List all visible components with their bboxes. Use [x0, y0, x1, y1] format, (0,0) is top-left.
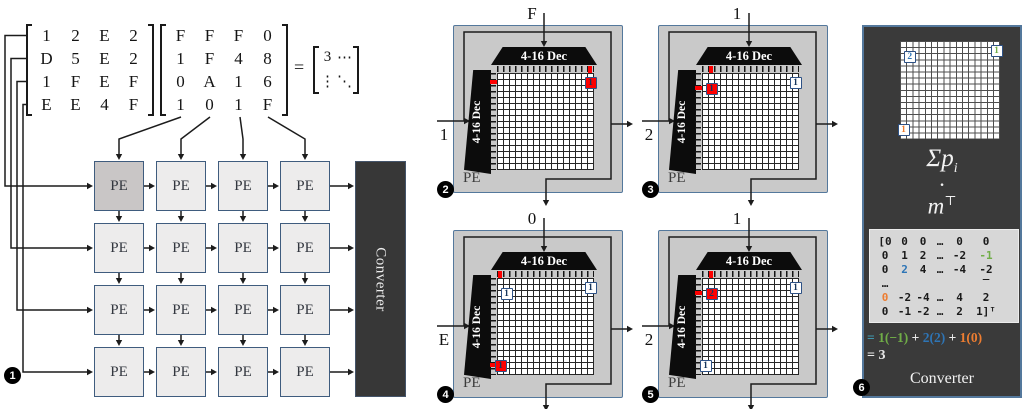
matrix-value: 8	[253, 47, 282, 70]
matrix-value: 2	[119, 24, 148, 47]
weight-matrix-value: -4	[947, 263, 972, 276]
pe-box-r3c3: PE	[280, 347, 330, 397]
result-matrix: 3⋯⋮⋱	[313, 46, 359, 94]
decoder-ticks-top	[497, 66, 594, 72]
step-badge-3: 3	[642, 181, 659, 198]
weight-matrix-value: 2	[913, 249, 933, 262]
row-decoder-label: 4-16 Dec	[472, 101, 484, 143]
figure-root: 12E2D5E21FEFEE4F FFF01F480A16101F = 3⋯⋮⋱…	[0, 0, 1029, 409]
converter-block: Converter	[355, 161, 406, 397]
matrix-value: 4	[90, 93, 119, 116]
systolic-array-overview: 12E2D5E21FEFEE4F FFF01F480A16101F = 3⋯⋮⋱…	[0, 0, 430, 409]
converter-detail-panel: 211 Σpi · m⊤ [000…00012…-2-1024…-4-2…‾0-…	[862, 25, 1022, 398]
weight-matrix-value: …	[933, 291, 947, 304]
pe-label: PE	[463, 375, 481, 392]
matrix-value: 6	[253, 70, 282, 93]
row-decoder-banner: 4-16 Dec	[669, 70, 696, 174]
equation-term: =	[867, 330, 878, 345]
column-decoder-banner: 4-16 Dec	[491, 252, 597, 270]
column-decoder-banner: 4-16 Dec	[696, 252, 802, 270]
matrix-value: 0	[253, 24, 282, 47]
selected-column-tick	[498, 271, 501, 278]
converter-panel-label: Converter	[864, 370, 1020, 388]
matrix-value: E	[61, 93, 90, 116]
row-decoder-banner: 4-16 Dec	[464, 275, 491, 379]
weight-matrix-row: …‾	[874, 276, 1018, 290]
top-input-label: 1	[729, 209, 745, 229]
weight-matrix-value: 4	[947, 291, 972, 304]
row-decoder-label: 4-16 Dec	[472, 306, 484, 348]
weight-matrix-row: [000…00	[874, 234, 1018, 248]
count-grid	[497, 73, 594, 170]
matrix-value: 5	[61, 47, 90, 70]
weight-matrix-value: …	[933, 263, 947, 276]
right-bracket	[148, 24, 154, 116]
pe-box-r2c0: PE	[94, 285, 144, 335]
selected-column-tick	[709, 66, 712, 73]
selected-column-tick	[588, 66, 591, 73]
equation-term: +	[908, 330, 922, 345]
active-count-cell: 1	[706, 83, 718, 95]
matrix-value: E	[90, 47, 119, 70]
matrix-value: ⋱	[336, 70, 353, 92]
converter-block-label: Converter	[372, 247, 389, 311]
step-badge-4: 4	[437, 386, 454, 403]
sum-formula: Σpi	[864, 145, 1020, 177]
stored-count-cell: 1	[585, 282, 597, 294]
pe-step-panel-5: 4-16 Dec4-16 Dec211PE125	[658, 230, 828, 398]
pe-box-r0c2: PE	[218, 161, 268, 211]
weight-matrix-value: 2	[972, 291, 1000, 304]
m-transpose-formula: m⊤	[864, 193, 1020, 220]
column-decoder-banner: 4-16 Dec	[696, 47, 802, 65]
pe-box-r3c2: PE	[218, 347, 268, 397]
weight-matrix-row: 012…-2-1	[874, 248, 1018, 262]
matrix-value: ⋮	[319, 70, 336, 92]
weight-matrix-value: ‾	[972, 277, 1000, 290]
stored-count-cell: 1	[790, 77, 802, 89]
weight-matrix-value: -4	[913, 291, 933, 304]
matrix-value: 0	[166, 70, 195, 93]
pe-box-r1c2: PE	[218, 223, 268, 273]
matrix-value: 1	[224, 70, 253, 93]
converter-count-cell: 1	[991, 45, 1003, 57]
matrix-value: F	[166, 24, 195, 47]
weight-matrix-value: -1	[972, 249, 1000, 262]
matrix-value: 2	[61, 24, 90, 47]
pe-box-r2c3: PE	[280, 285, 330, 335]
weight-matrix-value: 0	[896, 235, 913, 248]
weight-matrix-value: -2	[896, 291, 913, 304]
stored-count-cell: 1	[790, 282, 802, 294]
row-decoder-banner: 4-16 Dec	[669, 275, 696, 379]
left-input-label: 2	[641, 330, 657, 350]
weight-matrix-value: 0	[972, 235, 1000, 248]
accumulation-grid: 211	[900, 41, 1000, 139]
column-decoder-banner: 4-16 Dec	[491, 47, 597, 65]
active-count-cell: 1	[585, 77, 597, 89]
matrix-value: D	[32, 47, 61, 70]
pe-label: PE	[463, 170, 481, 187]
row-decoder-label: 4-16 Dec	[677, 101, 689, 143]
equals-sign: =	[294, 57, 304, 78]
weight-matrix-value: -1	[896, 305, 913, 318]
weight-matrix-value: 0	[947, 235, 972, 248]
matrix-value: F	[253, 93, 282, 116]
pe-box-r3c0: PE	[94, 347, 144, 397]
weight-matrix-value: 1	[896, 249, 913, 262]
matrix-value: 3	[319, 46, 336, 68]
active-count-cell: 2	[706, 288, 718, 300]
matrix-value: F	[195, 24, 224, 47]
weight-matrix-value: 2	[896, 263, 913, 276]
pe-box-r1c0: PE	[94, 223, 144, 273]
weight-matrix-row: 0-1-2…21]ᵀ	[874, 304, 1018, 318]
decoder-ticks-top	[702, 271, 799, 277]
pe-box-r2c1: PE	[156, 285, 206, 335]
left-input-label: 2	[641, 125, 657, 145]
weight-matrix-row: 0-2-4…42	[874, 290, 1018, 304]
equation-term: 1(−1)	[878, 330, 908, 345]
left-input-label: E	[436, 330, 452, 350]
weight-matrix-value: …	[874, 277, 896, 290]
matrix-value: F	[195, 47, 224, 70]
selected-row-tick	[695, 291, 702, 294]
equation-term: 2(2)	[923, 330, 946, 345]
matrix-a: 12E2D5E21FEFEE4F	[26, 24, 154, 116]
matrix-value: 1	[224, 93, 253, 116]
weight-matrix-value: 0	[874, 263, 896, 276]
converter-count-cell: 2	[904, 51, 916, 63]
top-input-label: 1	[729, 4, 745, 24]
equation-term: 1(0)	[960, 330, 983, 345]
weight-matrix-value: -2	[947, 249, 972, 262]
selected-column-tick	[709, 271, 712, 278]
weight-matrix-value: 4	[913, 263, 933, 276]
right-bracket	[282, 24, 288, 116]
matrix-value: 0	[195, 93, 224, 116]
weight-matrix-value: …	[933, 235, 947, 248]
matrix-value: F	[224, 24, 253, 47]
left-input-label: 1	[436, 125, 452, 145]
active-count-cell: 1	[495, 360, 507, 372]
matrix-value: 1	[32, 70, 61, 93]
pe-label: PE	[668, 170, 686, 187]
stored-count-cell: 1	[700, 360, 712, 372]
step-badge-1: 1	[4, 367, 21, 384]
matrix-value: F	[119, 70, 148, 93]
decoder-ticks-top	[702, 66, 799, 72]
pe-box-r1c1: PE	[156, 223, 206, 273]
pe-box-r2c2: PE	[218, 285, 268, 335]
matrix-value: 1	[166, 93, 195, 116]
matrix-value: E	[32, 93, 61, 116]
matrix-value: E	[90, 24, 119, 47]
step-badge-5: 5	[642, 386, 659, 403]
weight-matrix-value: 0	[874, 249, 896, 262]
decoder-ticks-top	[497, 271, 594, 277]
equation-line-1: = 1(−1) + 2(2) + 1(0)	[867, 330, 982, 346]
row-decoder-label: 4-16 Dec	[677, 306, 689, 348]
weight-matrix-row: 024…-4-2	[874, 262, 1018, 276]
matrix-value: E	[90, 70, 119, 93]
pe-box-r0c1: PE	[156, 161, 206, 211]
matrix-values: FFF01F480A16101F	[166, 24, 282, 116]
pe-step-panel-3: 4-16 Dec4-16 Dec11PE123	[658, 25, 828, 193]
matrix-value: A	[195, 70, 224, 93]
matrix-value: 1	[32, 24, 61, 47]
pe-box-r1c3: PE	[280, 223, 330, 273]
weight-matrix-value: 0	[913, 235, 933, 248]
pe-label: PE	[668, 375, 686, 392]
matrix-value: F	[61, 70, 90, 93]
pe-box-r0c0: PE	[94, 161, 144, 211]
matrix-value: ⋯	[336, 46, 353, 68]
row-decoder-banner: 4-16 Dec	[464, 70, 491, 174]
weight-matrix: [000…00012…-2-1024…-4-2…‾0-2-4…420-1-2…2…	[869, 229, 1019, 323]
matrix-value: 4	[224, 47, 253, 70]
matrix-values: 12E2D5E21FEFEE4F	[32, 24, 148, 116]
converter-count-cell: 1	[898, 124, 910, 136]
weight-matrix-value: -2	[913, 305, 933, 318]
selected-row-tick	[695, 86, 702, 89]
matrix-value: 2	[119, 47, 148, 70]
pe-step-panel-2: 4-16 Dec4-16 Dec1PEF12	[453, 25, 623, 193]
weight-matrix-value: -2	[972, 263, 1000, 276]
decoder-ticks-left	[490, 73, 496, 170]
stored-count-cell: 1	[501, 288, 513, 300]
pe-step-panel-4: 4-16 Dec4-16 Dec111PE0E4	[453, 230, 623, 398]
step-badge-6: 6	[853, 379, 870, 396]
weight-matrix-value: …	[933, 305, 947, 318]
matrix-values: 3⋯⋮⋱	[319, 46, 353, 94]
step-badge-2: 2	[437, 181, 454, 198]
weight-matrix-value: 0	[874, 305, 896, 318]
selected-row-tick	[490, 80, 497, 83]
equation-line-2: = 3	[867, 348, 885, 364]
matrix-b: FFF01F480A16101F	[160, 24, 288, 116]
pe-box-r0c3: PE	[280, 161, 330, 211]
equation-term: +	[945, 330, 959, 345]
top-input-label: F	[524, 4, 540, 24]
right-bracket	[353, 46, 359, 94]
weight-matrix-value: 0	[874, 291, 896, 304]
matrix-value: 1	[166, 47, 195, 70]
weight-matrix-value: [0	[874, 235, 896, 248]
weight-matrix-value: 1]ᵀ	[972, 305, 1000, 318]
weight-matrix-value: …	[933, 249, 947, 262]
matrix-value: F	[119, 93, 148, 116]
top-input-label: 0	[524, 209, 540, 229]
weight-matrix-value: 2	[947, 305, 972, 318]
pe-box-r3c1: PE	[156, 347, 206, 397]
